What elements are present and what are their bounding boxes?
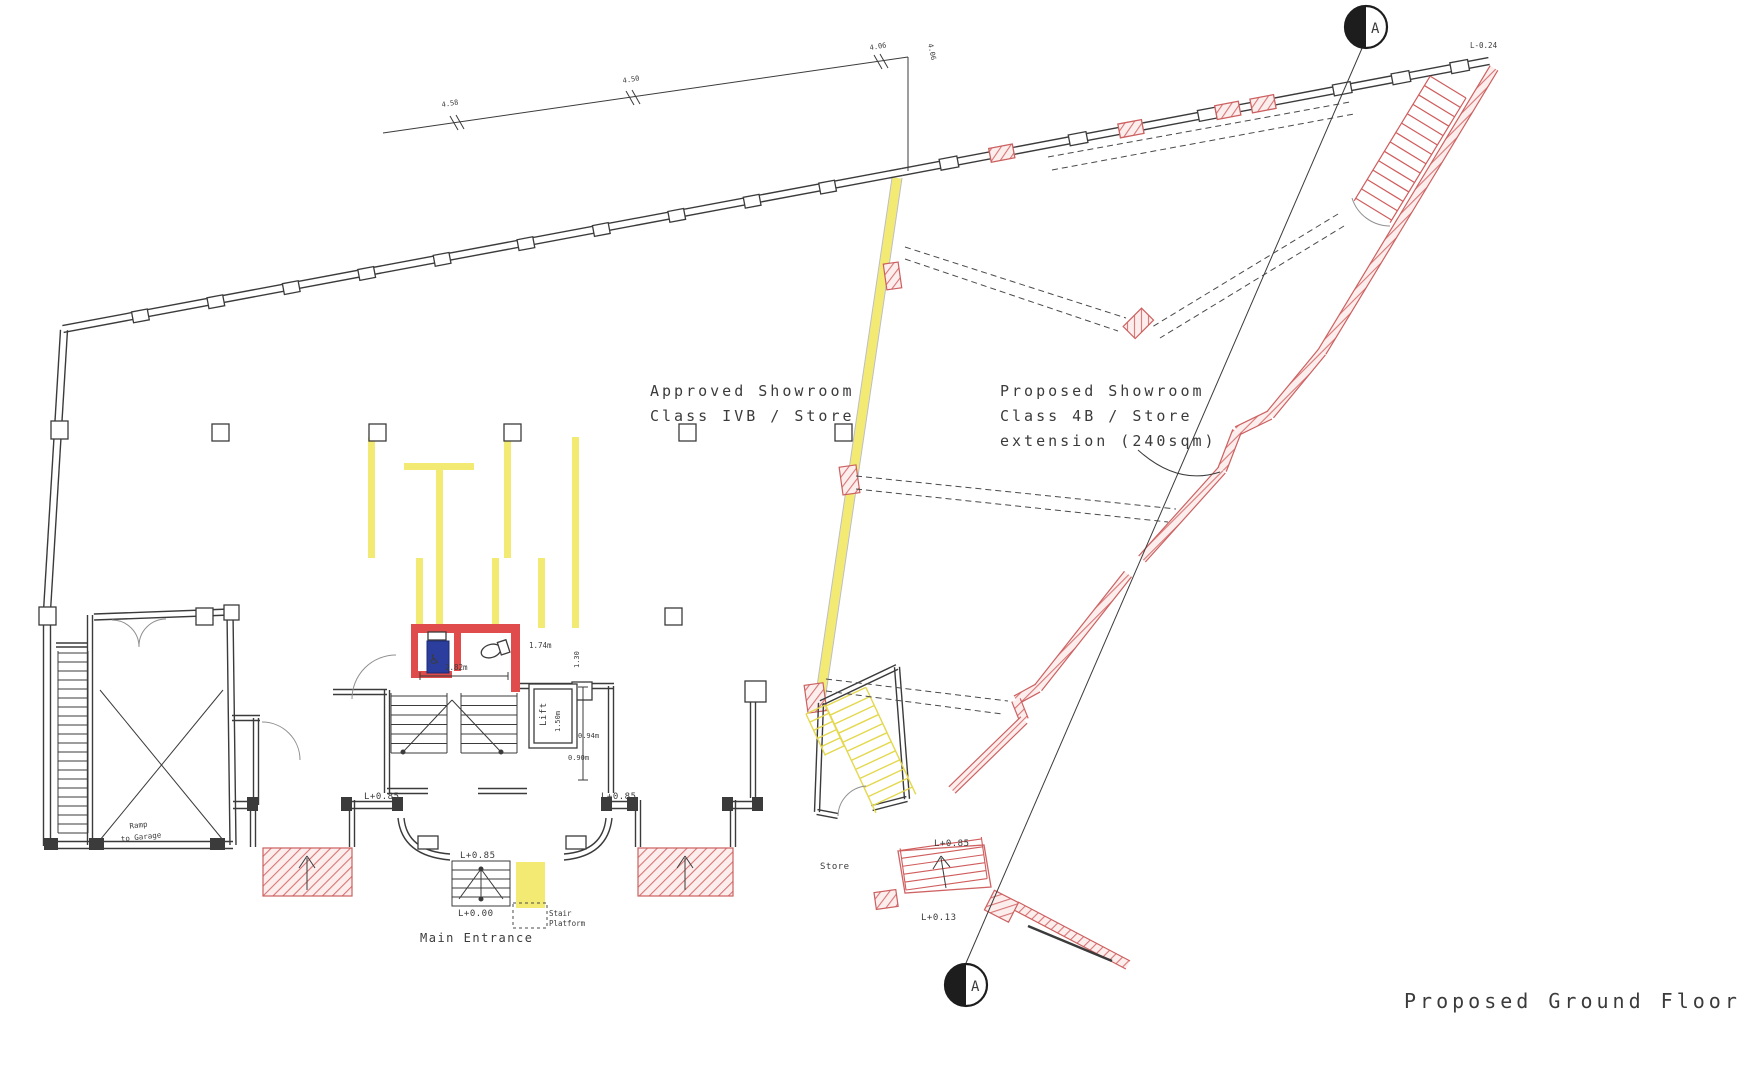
- dim-130: 1.30: [573, 651, 581, 668]
- section-marker-bottom: A: [945, 964, 987, 1006]
- accessible-wc-icon: ♿: [430, 650, 439, 668]
- yellow-highlight-wall: [815, 178, 902, 700]
- boundary-dim-3: 4.06: [869, 41, 887, 52]
- misc-lines: [966, 46, 1363, 963]
- floor-plan-page: ♿: [0, 0, 1755, 1080]
- section-letter-top: A: [1371, 21, 1380, 37]
- level-entrance-top: L+0.85: [460, 851, 496, 861]
- level-store-steps-top: L+0.85: [934, 839, 970, 849]
- ramp-label-1: Ramp: [129, 820, 148, 831]
- section-marker-top: A: [1345, 6, 1387, 48]
- approved-room-label-2: Class IVB / Store: [650, 407, 855, 425]
- floor-plan-canvas: ♿: [0, 0, 1755, 1080]
- proposed-room-label-3: extension (240sqm): [1000, 432, 1217, 450]
- drawing-title: Proposed Ground Floor: [1404, 989, 1741, 1013]
- boundary-dim-4: 4.06: [926, 43, 937, 61]
- approved-room-label-1: Approved Showroom: [650, 382, 855, 400]
- dim-174: 1.74m: [529, 641, 552, 650]
- section-letter-bottom: A: [971, 979, 980, 995]
- wc-core: ♿: [411, 624, 520, 692]
- level-core-right: L+0.85: [601, 792, 637, 802]
- main-stair-arrow: [401, 700, 503, 754]
- step-arrows: [299, 856, 950, 890]
- stair-platform-label-2: Platform: [549, 919, 586, 928]
- stair-platform-label-1: Stair: [549, 909, 572, 918]
- red-pier-blocks: [804, 262, 1153, 922]
- level-store-steps-bottom: L+0.13: [921, 913, 957, 923]
- lift-label: Lift: [539, 702, 549, 726]
- proposed-extension-walls: [949, 66, 1498, 969]
- dim-090: 0.90m: [568, 754, 589, 762]
- boundary-dim-2: 4.50: [622, 74, 640, 85]
- main-entrance-label: Main Entrance: [420, 931, 533, 945]
- level-top-right: L-0.24: [1470, 41, 1498, 50]
- entrance-platform-highlight: [516, 862, 545, 908]
- store-label: Store: [820, 862, 850, 872]
- level-entrance-bottom: L+0.00: [458, 909, 494, 919]
- yellow-partitions: [368, 437, 579, 628]
- level-core-left: L+0.85: [364, 792, 400, 802]
- external-steps: [263, 845, 991, 896]
- dim-282: 2.82m: [445, 663, 468, 672]
- boundary-dim-1: 4.58: [441, 98, 459, 109]
- dim-094: 0.94m: [578, 732, 599, 740]
- garage-ramp: [100, 690, 223, 840]
- existing-walls: [44, 58, 1490, 860]
- stair-treads: [58, 76, 1466, 897]
- proposed-room-label-1: Proposed Showroom: [1000, 382, 1205, 400]
- dim-lift-width: 1.50m: [554, 711, 562, 732]
- site-boundary: [383, 54, 908, 171]
- section-line: [966, 46, 1363, 963]
- proposed-room-label-2: Class 4B / Store: [1000, 407, 1193, 425]
